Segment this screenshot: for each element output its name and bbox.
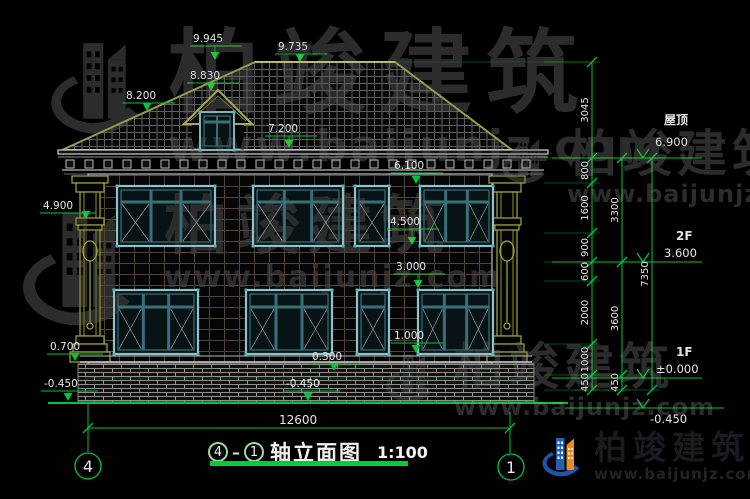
grip-dot: [199, 111, 202, 114]
elevation-mark-text: 6.100: [394, 160, 424, 172]
dim-value: 800: [580, 161, 591, 180]
dentil: [218, 160, 226, 168]
dentil: [85, 160, 93, 168]
grip-dot: [356, 289, 359, 292]
title-underline: [210, 461, 408, 466]
dentil: [484, 160, 492, 168]
window: [354, 185, 391, 248]
dentil: [332, 160, 340, 168]
elevation-mark-text: -0.450: [44, 378, 78, 390]
elevation-mark-text: 9.945: [193, 33, 223, 45]
dim-value: 600: [580, 262, 591, 281]
grip-dot: [252, 245, 255, 248]
grip-dot: [388, 353, 391, 356]
dentil: [199, 160, 207, 168]
level-marker: [637, 149, 649, 158]
dentil: [465, 160, 473, 168]
dentil: [313, 160, 321, 168]
dim-value: 3300: [610, 197, 621, 222]
dim-value: 7350: [640, 261, 651, 286]
grip-dot: [342, 245, 345, 248]
elevation-mark-text: 8.830: [190, 70, 220, 82]
dentil: [503, 160, 511, 168]
level-value: -0.450: [650, 412, 687, 426]
axis-number: 4: [83, 457, 93, 476]
level-line: -0.450: [565, 399, 724, 426]
elevation-mark-text: 8.200: [126, 90, 156, 102]
level-line: 屋顶6.900: [552, 113, 702, 158]
dim-value: 1000: [580, 347, 591, 372]
dentil: [237, 160, 245, 168]
grip-dot: [356, 353, 359, 356]
floor-label: 屋顶: [664, 113, 688, 127]
window: [245, 289, 334, 356]
level-marker: [637, 369, 649, 378]
elevation-drawing-canvas: 9.9459.7358.8308.2007.2006.1004.9004.500…: [0, 0, 750, 499]
grip-dot: [388, 289, 391, 292]
grip-dot: [388, 245, 391, 248]
elevation-mark-text: 7.200: [268, 123, 298, 135]
elevation-mark-text: 9.735: [278, 41, 308, 53]
grip-dot: [331, 289, 334, 292]
grip-dot: [492, 353, 495, 356]
grip-dot: [388, 185, 391, 188]
axis-bubble: 4: [75, 453, 101, 479]
grip-dot: [214, 185, 217, 188]
dentil: [370, 160, 378, 168]
title-axis-start-bubble: 4: [208, 442, 228, 462]
elevation-mark-text: -0.450: [286, 378, 320, 390]
window: [252, 185, 345, 248]
grip-dot: [492, 245, 495, 248]
dim-value: 3600: [610, 306, 621, 331]
dentil: [351, 160, 359, 168]
dentil: [161, 160, 169, 168]
brand-logo-icon: [536, 427, 586, 487]
elevation-mark: 9.735: [275, 41, 327, 62]
elevation-mark-text: 4.500: [390, 216, 420, 228]
brand-name: 柏竣建筑: [594, 431, 750, 466]
house-elevation: [48, 62, 568, 403]
grip-dot: [245, 353, 248, 356]
grip-dot: [233, 149, 236, 152]
elevation-mark-text: 4.900: [43, 200, 73, 212]
level-value: 3.600: [664, 246, 697, 260]
level-value: 6.900: [655, 135, 688, 149]
elevation-mark: 9.945: [190, 33, 242, 60]
grip-dot: [214, 245, 217, 248]
title-scale: 1:100: [377, 443, 428, 462]
dentil: [180, 160, 188, 168]
level-marker: [637, 253, 649, 262]
grip-dot: [252, 185, 255, 188]
elevation-mark-text: 0.300: [312, 351, 342, 363]
axis-bubble: 1: [498, 454, 524, 480]
dentil: [256, 160, 264, 168]
grip-dot: [116, 185, 119, 188]
grip-dot: [113, 353, 116, 356]
window: [113, 289, 200, 356]
title-dash: –: [232, 443, 240, 462]
floor-label: 1F: [676, 345, 693, 359]
dentil-row: [66, 160, 530, 168]
grip-dot: [492, 289, 495, 292]
dentil: [66, 160, 74, 168]
window: [356, 289, 391, 356]
roof: [62, 62, 512, 150]
grip-dot: [199, 149, 202, 152]
dim-chain: 7350: [604, 153, 660, 395]
axis-number: 1: [506, 458, 516, 477]
grip-dot: [419, 245, 422, 248]
dim-value: 3045: [580, 97, 591, 122]
dormer-window: [199, 111, 236, 152]
grip-dot: [245, 289, 248, 292]
cad-elevation-screenshot: 9.9459.7358.8308.2007.2006.1004.9004.500…: [0, 0, 750, 499]
elevation-mark-text: 1.000: [394, 330, 424, 342]
dentil: [275, 160, 283, 168]
dentil: [446, 160, 454, 168]
window: [116, 185, 217, 248]
dentil: [427, 160, 435, 168]
total-width-value: 12600: [279, 413, 317, 427]
dim-value: 450: [580, 373, 591, 392]
grip-dot: [492, 185, 495, 188]
grip-dot: [417, 289, 420, 292]
dentil: [123, 160, 131, 168]
grip-dot: [113, 289, 116, 292]
window: [419, 185, 495, 248]
elevation-mark-text: 0.700: [50, 341, 80, 353]
grip-dot: [419, 185, 422, 188]
floor-label: 2F: [676, 229, 693, 243]
brand-block: 柏竣建筑 www.baijunjz.com: [536, 427, 750, 487]
dim-value: 900: [580, 238, 591, 257]
title-axis-end-bubble: 1: [244, 442, 264, 462]
grip-dot: [197, 289, 200, 292]
elevation-mark-text: 3.000: [396, 261, 426, 273]
grip-dot: [354, 245, 357, 248]
grip-dot: [354, 185, 357, 188]
grip-dot: [197, 353, 200, 356]
dim-value: 2000: [580, 300, 591, 325]
dim-value: 450: [610, 373, 621, 392]
grip-dot: [233, 111, 236, 114]
dentil: [522, 160, 530, 168]
level-marker: [637, 399, 649, 408]
window: [417, 289, 495, 356]
dentil: [294, 160, 302, 168]
dentil: [142, 160, 150, 168]
dim-chain: 3045800160090060020001000450: [544, 57, 600, 395]
brand-site: www.baijunjz.com: [594, 465, 750, 483]
grip-dot: [116, 245, 119, 248]
dentil: [104, 160, 112, 168]
grip-dot: [342, 185, 345, 188]
level-line: 1F±0.000: [552, 345, 702, 378]
grip-dot: [417, 353, 420, 356]
level-value: ±0.000: [656, 362, 699, 376]
cornice: [58, 150, 548, 174]
dim-value: 1600: [580, 195, 591, 220]
